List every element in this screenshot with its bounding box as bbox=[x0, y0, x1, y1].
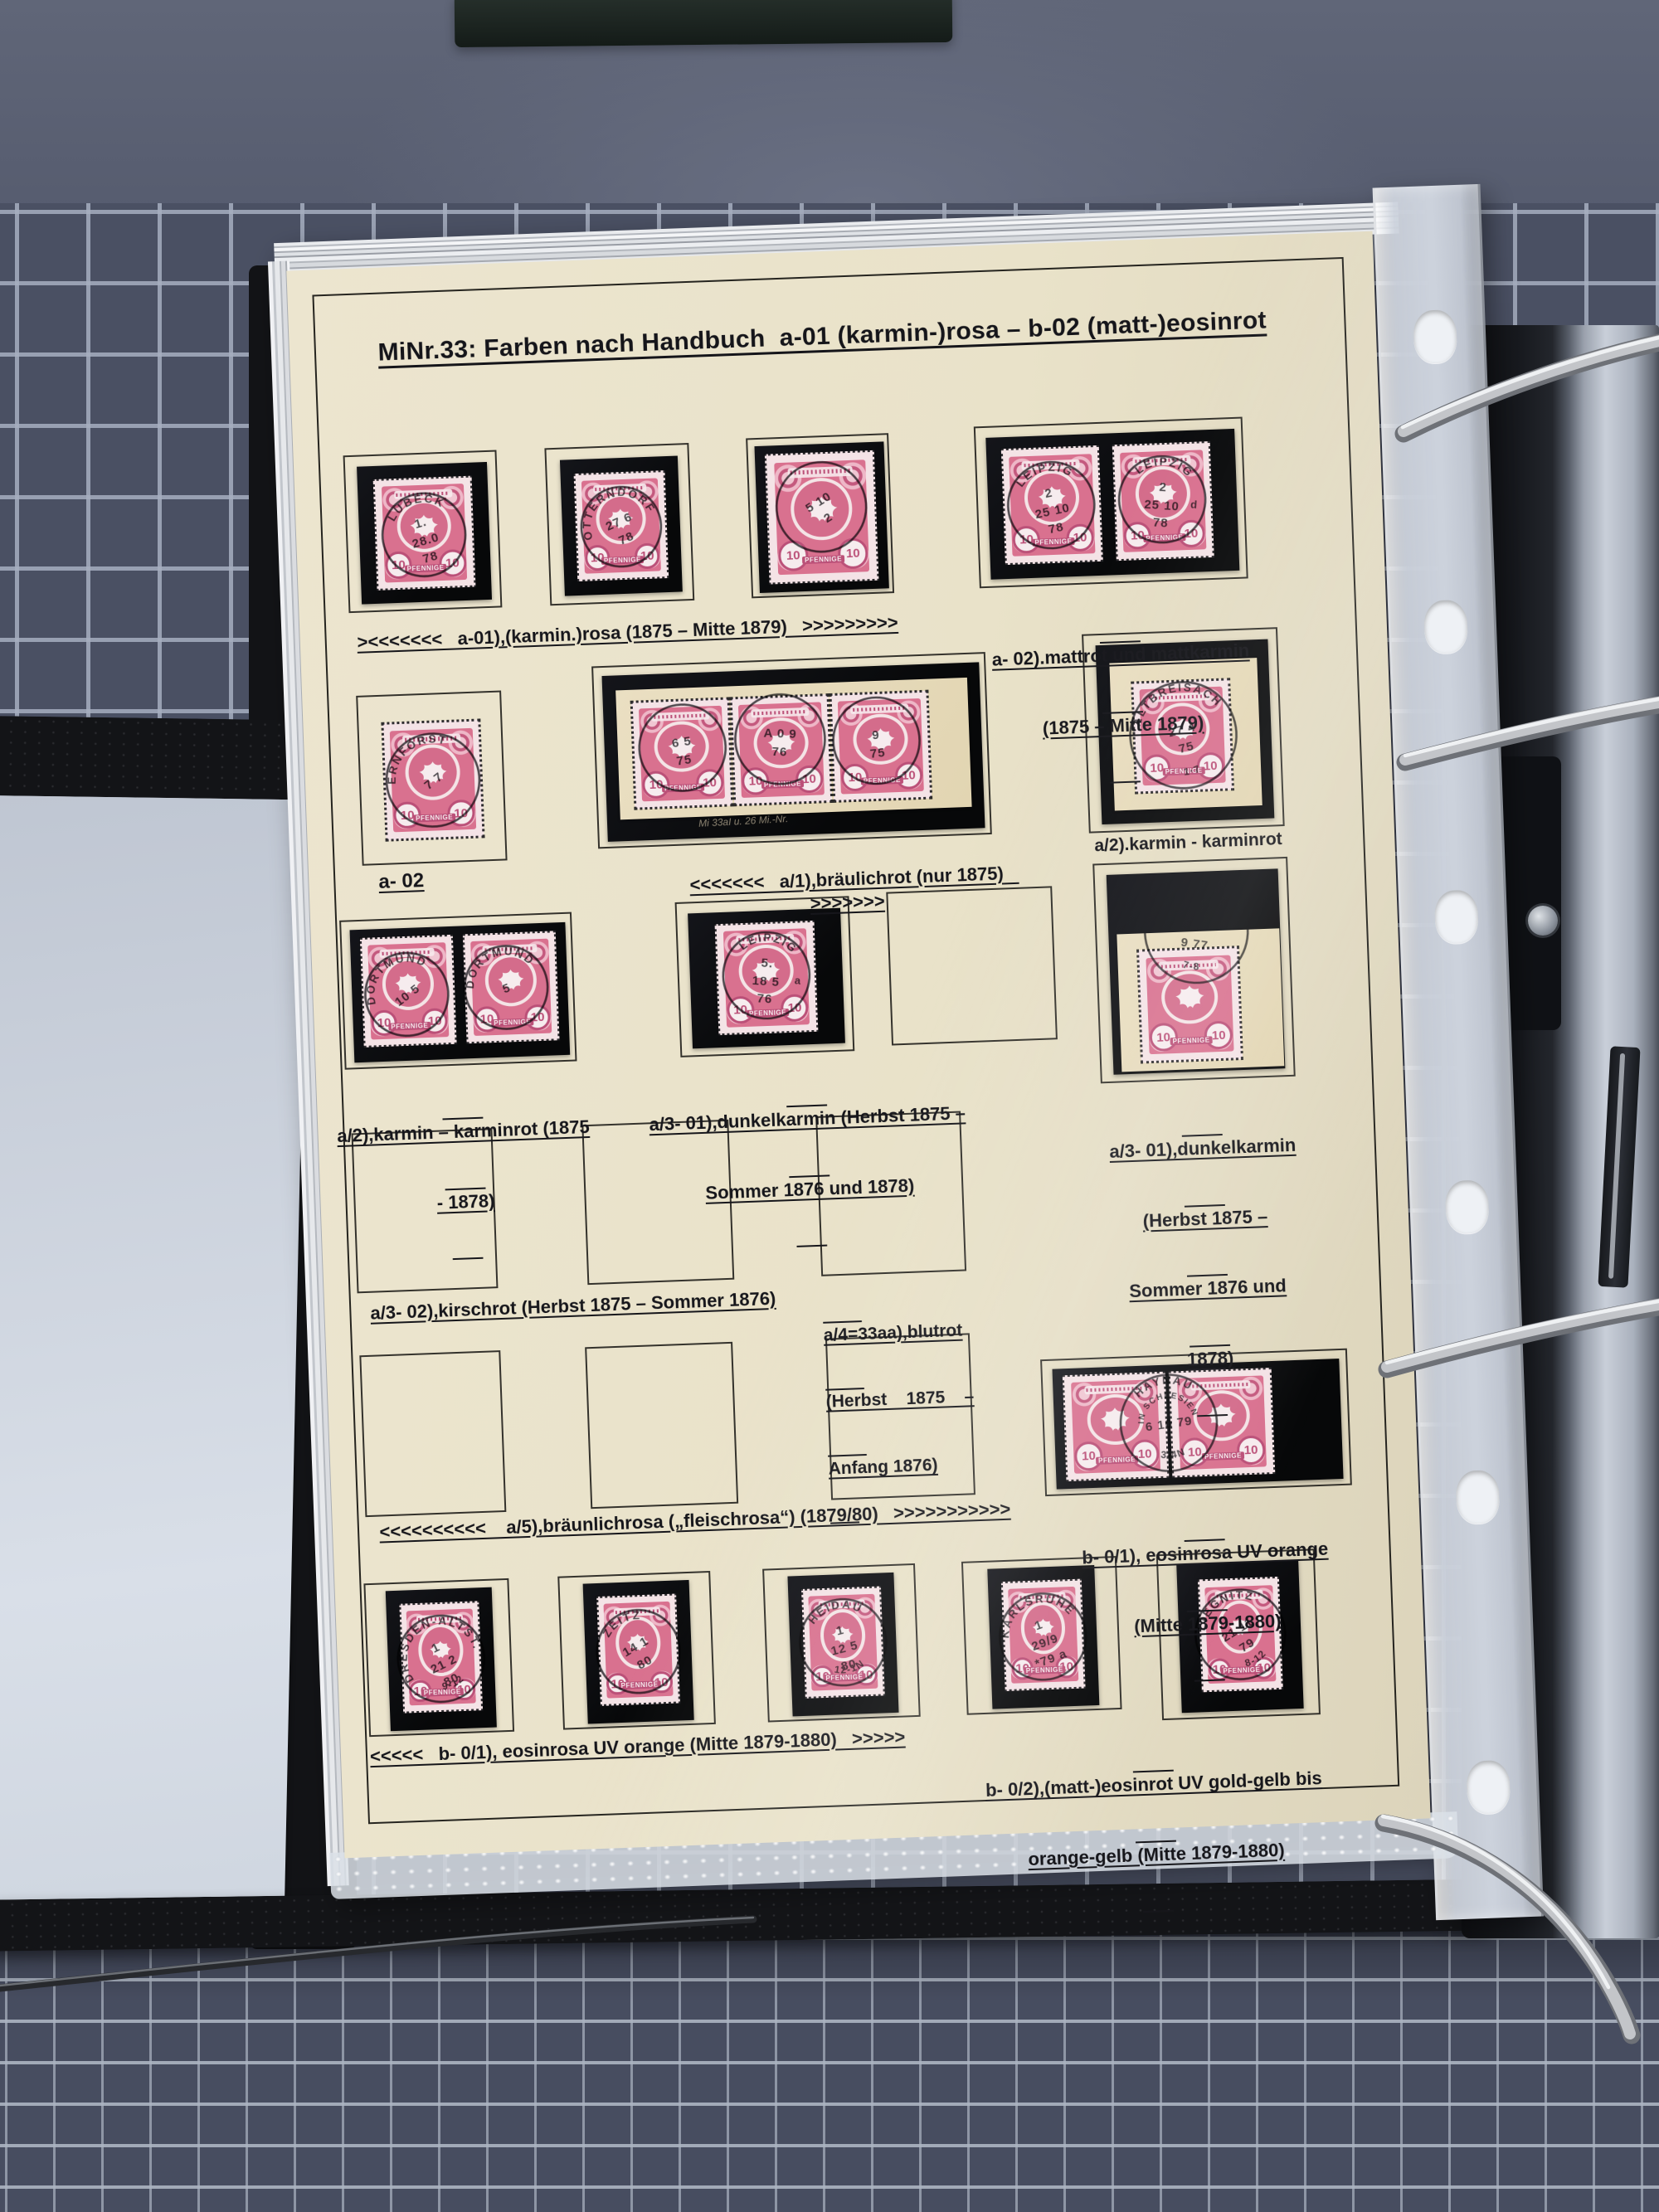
postmark: DORTMUND10 5 bbox=[350, 929, 472, 1059]
punch-hole bbox=[1445, 1179, 1490, 1234]
punch-hole bbox=[1434, 890, 1479, 945]
caption-eosinrosa-pair: b- 0/1), eosinrosa UV orange (Mitte 1879… bbox=[1042, 1490, 1370, 1688]
stamp-box: 1010PFENNIGE1010PFENNIGEDORTMUND10 5DORT… bbox=[339, 912, 577, 1070]
svg-text:1: 1 bbox=[429, 1640, 442, 1655]
postmark: ERNFORST7 7 bbox=[377, 714, 489, 846]
caption-a3-dunkelkarmin-right: a/3- 01),dunkelkarmin (Herbst 1875 – Som… bbox=[1084, 1087, 1328, 1422]
svg-text:28.0: 28.0 bbox=[411, 530, 441, 552]
album-page: MiNr.33: Farben nach Handbuch a-01 (karm… bbox=[286, 231, 1430, 1859]
punch-hole bbox=[1466, 1760, 1511, 1815]
postmark: LEIPZIG5.18 576a bbox=[715, 924, 818, 1027]
svg-text:78: 78 bbox=[1047, 520, 1065, 537]
stamp-box: 1010PFENNIGELEIPZIG5.18 576a bbox=[675, 896, 855, 1057]
svg-text:6 5: 6 5 bbox=[671, 734, 693, 751]
svg-text:9 77: 9 77 bbox=[1180, 936, 1209, 953]
postmark-layer: KROTZINGEN49 777-8 bbox=[1117, 928, 1284, 1072]
stamp-box: 1010PFENNIGE1010PFENNIGELEIPZIG225 1078L… bbox=[974, 417, 1248, 589]
svg-text:7 7: 7 7 bbox=[421, 770, 445, 793]
punch-hole bbox=[1413, 309, 1457, 364]
punch-hole bbox=[1455, 1470, 1500, 1524]
svg-text:2: 2 bbox=[1159, 480, 1167, 495]
postmark-layer: LEIPZIG225 1078LEIPZIG225 1078d bbox=[985, 429, 1239, 580]
svg-text:76: 76 bbox=[757, 991, 773, 1006]
stamp-box: 1010PFENNIGE5 102 bbox=[746, 433, 894, 598]
postmark: 975 bbox=[824, 688, 930, 794]
dark-object bbox=[455, 0, 953, 47]
svg-text:12 5: 12 5 bbox=[829, 1638, 859, 1659]
svg-text:10 5: 10 5 bbox=[392, 981, 423, 1009]
svg-text:4: 4 bbox=[1192, 928, 1202, 933]
postmark-layer: ZEITZ14 180 bbox=[583, 1580, 694, 1724]
postmark-layer: DORTMUND10 5DORTMUND5 bbox=[350, 922, 571, 1062]
empty-stamp-box bbox=[585, 1342, 738, 1509]
photo-scene: MiNr.33: Farben nach Handbuch a-01 (karm… bbox=[0, 0, 1659, 2212]
stamp-box: 1010PFENNIGEKROTZINGEN49 777-8 bbox=[1092, 857, 1296, 1083]
svg-text:25 10: 25 10 bbox=[1034, 501, 1071, 523]
svg-text:75: 75 bbox=[675, 752, 693, 768]
postmark-layer: LEIPZIG5.18 576a bbox=[688, 908, 845, 1049]
postmark-layer: OTTERNDORF27 678 bbox=[560, 456, 683, 596]
paper-sheet bbox=[0, 786, 308, 1910]
svg-text:A 0 9: A 0 9 bbox=[763, 727, 797, 741]
svg-text:5: 5 bbox=[500, 980, 513, 996]
svg-text:78: 78 bbox=[421, 548, 440, 566]
postmark-layer: HEIDAU112 58012-1N bbox=[787, 1573, 898, 1717]
postmark: 6 575 bbox=[628, 693, 737, 802]
postmark: DORTMUND5 bbox=[445, 927, 567, 1048]
svg-text:80: 80 bbox=[635, 1653, 655, 1673]
stamp-box: 1010PFENNIGE1010PFENNIGE1010PFENNIGE6 57… bbox=[591, 652, 992, 848]
postmark: HEIDAU112 58012-1N bbox=[787, 1584, 898, 1701]
punch-hole bbox=[1423, 600, 1468, 654]
svg-text:5.: 5. bbox=[761, 956, 774, 971]
svg-text:75: 75 bbox=[869, 746, 886, 761]
caption-a02-mattrot: a- 02).mattrot und mattkarmin (1875 – Mi… bbox=[970, 592, 1275, 790]
svg-text:1: 1 bbox=[1033, 1617, 1045, 1633]
mechanism-screw bbox=[1528, 906, 1558, 936]
postmark: ZEITZ14 180 bbox=[583, 1588, 694, 1715]
empty-stamp-box bbox=[359, 1350, 506, 1517]
stamp-box: 1010PFENNIGEHEIDAU112 58012-1N bbox=[762, 1563, 921, 1723]
caption-a3-dunkelkarmin: a/3- 01),dunkelkarmin (Herbst 1875 – Som… bbox=[615, 1054, 1003, 1255]
svg-text:DORTMUND: DORTMUND bbox=[350, 936, 433, 1011]
svg-text:7-8: 7-8 bbox=[1181, 958, 1202, 973]
svg-text:78: 78 bbox=[1152, 515, 1169, 530]
svg-text:78: 78 bbox=[616, 529, 636, 548]
caption-a2-karmin-1875: a/2),karmin – karminrot (1875 - 1878) bbox=[331, 1069, 598, 1266]
postmark: A 0 976 bbox=[728, 688, 831, 790]
postmark-layer: LÜBECK1.28.078 bbox=[357, 462, 492, 605]
postmark-layer: 5 102 bbox=[754, 441, 888, 593]
svg-text:9: 9 bbox=[871, 728, 880, 743]
postmark: LEIPZIG225 1078d bbox=[1111, 448, 1214, 551]
postmark: 5 102 bbox=[754, 441, 888, 576]
svg-text:LEIPZIG: LEIPZIG bbox=[1132, 453, 1197, 480]
postmark: OTTERNDORF27 678 bbox=[562, 468, 681, 586]
postmark: LEIPZIG225 1078 bbox=[994, 448, 1108, 562]
postmark-layer: 6 575A 0 976975 bbox=[615, 678, 971, 819]
postmark-layer: DRESDEN-ALTST.121 2809-12 bbox=[386, 1587, 497, 1732]
mechanism-lever bbox=[1598, 1046, 1640, 1287]
postmark-layer: ERNFORST7 7 bbox=[377, 714, 489, 846]
svg-text:1.: 1. bbox=[413, 515, 429, 532]
svg-text:25 10: 25 10 bbox=[1144, 498, 1180, 514]
stamp-box: 1010PFENNIGEERNFORST7 7 bbox=[356, 691, 507, 866]
album-page-stack: MiNr.33: Farben nach Handbuch a-01 (karm… bbox=[286, 231, 1430, 1859]
svg-text:HEIDAU: HEIDAU bbox=[803, 1592, 868, 1628]
stamp-box: 1010PFENNIGEOTTERNDORF27 678 bbox=[544, 443, 694, 605]
svg-text:LEIPZIG: LEIPZIG bbox=[736, 929, 800, 956]
svg-text:18 5: 18 5 bbox=[752, 974, 780, 989]
stamp-box: 1010PFENNIGEZEITZ14 180 bbox=[557, 1571, 716, 1730]
caption-eosinrot: b- 0/2),(matt-)eosinrot UV gold-gelb bis… bbox=[971, 1720, 1340, 1920]
cutting-mat-grid-lower bbox=[0, 1912, 1659, 2212]
postmark: LÜBECK1.28.078 bbox=[367, 477, 482, 592]
postmark: DRESDEN-ALTST.121 2809-12 bbox=[386, 1594, 497, 1723]
caption-blutrot: a/4=33aa),blutrot (Herbst 1875 – Anfang … bbox=[821, 1274, 996, 1525]
svg-text:a: a bbox=[794, 974, 801, 987]
postmark: KROTZINGEN49 777-8 bbox=[1133, 928, 1260, 994]
svg-text:1: 1 bbox=[834, 1623, 845, 1639]
svg-text:76: 76 bbox=[771, 745, 787, 760]
stamp-box: 1010PFENNIGEDRESDEN-ALTST.121 2809-12 bbox=[363, 1578, 514, 1737]
svg-text:d: d bbox=[1190, 498, 1198, 511]
caption-a-02: a- 02 bbox=[378, 866, 495, 896]
svg-text:2: 2 bbox=[821, 510, 835, 526]
svg-text:2: 2 bbox=[1044, 486, 1054, 502]
svg-text:DORTMUND: DORTMUND bbox=[453, 933, 539, 994]
stamp-box: 1010PFENNIGELÜBECK1.28.078 bbox=[343, 450, 503, 614]
svg-text:3-4N: 3-4N bbox=[1159, 1445, 1188, 1462]
